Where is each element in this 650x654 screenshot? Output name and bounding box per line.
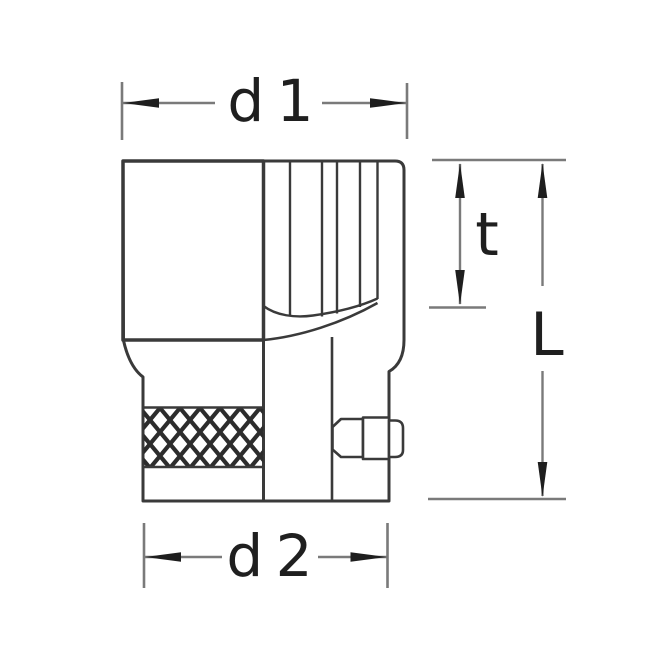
d1-arrowhead-right	[370, 98, 406, 108]
dimension-d1: d 1	[122, 67, 407, 140]
dimension-d2: d 2	[144, 522, 388, 590]
cutaway-break-line	[264, 303, 378, 340]
detent-pin-head	[389, 421, 403, 458]
knurl-texture	[144, 408, 264, 468]
detent-pin-ball	[333, 419, 364, 457]
t-label: t	[475, 200, 499, 270]
dimension-t: t	[429, 160, 566, 308]
d1-label: d 1	[227, 67, 310, 135]
technical-drawing-canvas: d 1 t L d 2	[0, 0, 650, 650]
d1-arrowhead-left	[123, 98, 159, 108]
d2-arrowhead-left	[145, 552, 181, 562]
d2-arrowhead-right	[351, 552, 387, 562]
detent-pin-flange	[363, 418, 389, 460]
knurl-band	[144, 408, 264, 468]
L-arrowhead-up	[538, 163, 548, 198]
t-arrowhead-down	[455, 270, 465, 305]
t-arrowhead-up	[455, 163, 465, 198]
hex-recess-lines	[290, 162, 378, 317]
d2-label: d 2	[226, 522, 309, 590]
socket-dimension-drawing: d 1 t L d 2	[0, 0, 650, 650]
socket-body	[123, 161, 404, 501]
L-label: L	[530, 300, 564, 370]
socket-front-face	[123, 161, 264, 340]
L-arrowhead-down	[538, 462, 548, 497]
detent-pin	[333, 418, 404, 460]
